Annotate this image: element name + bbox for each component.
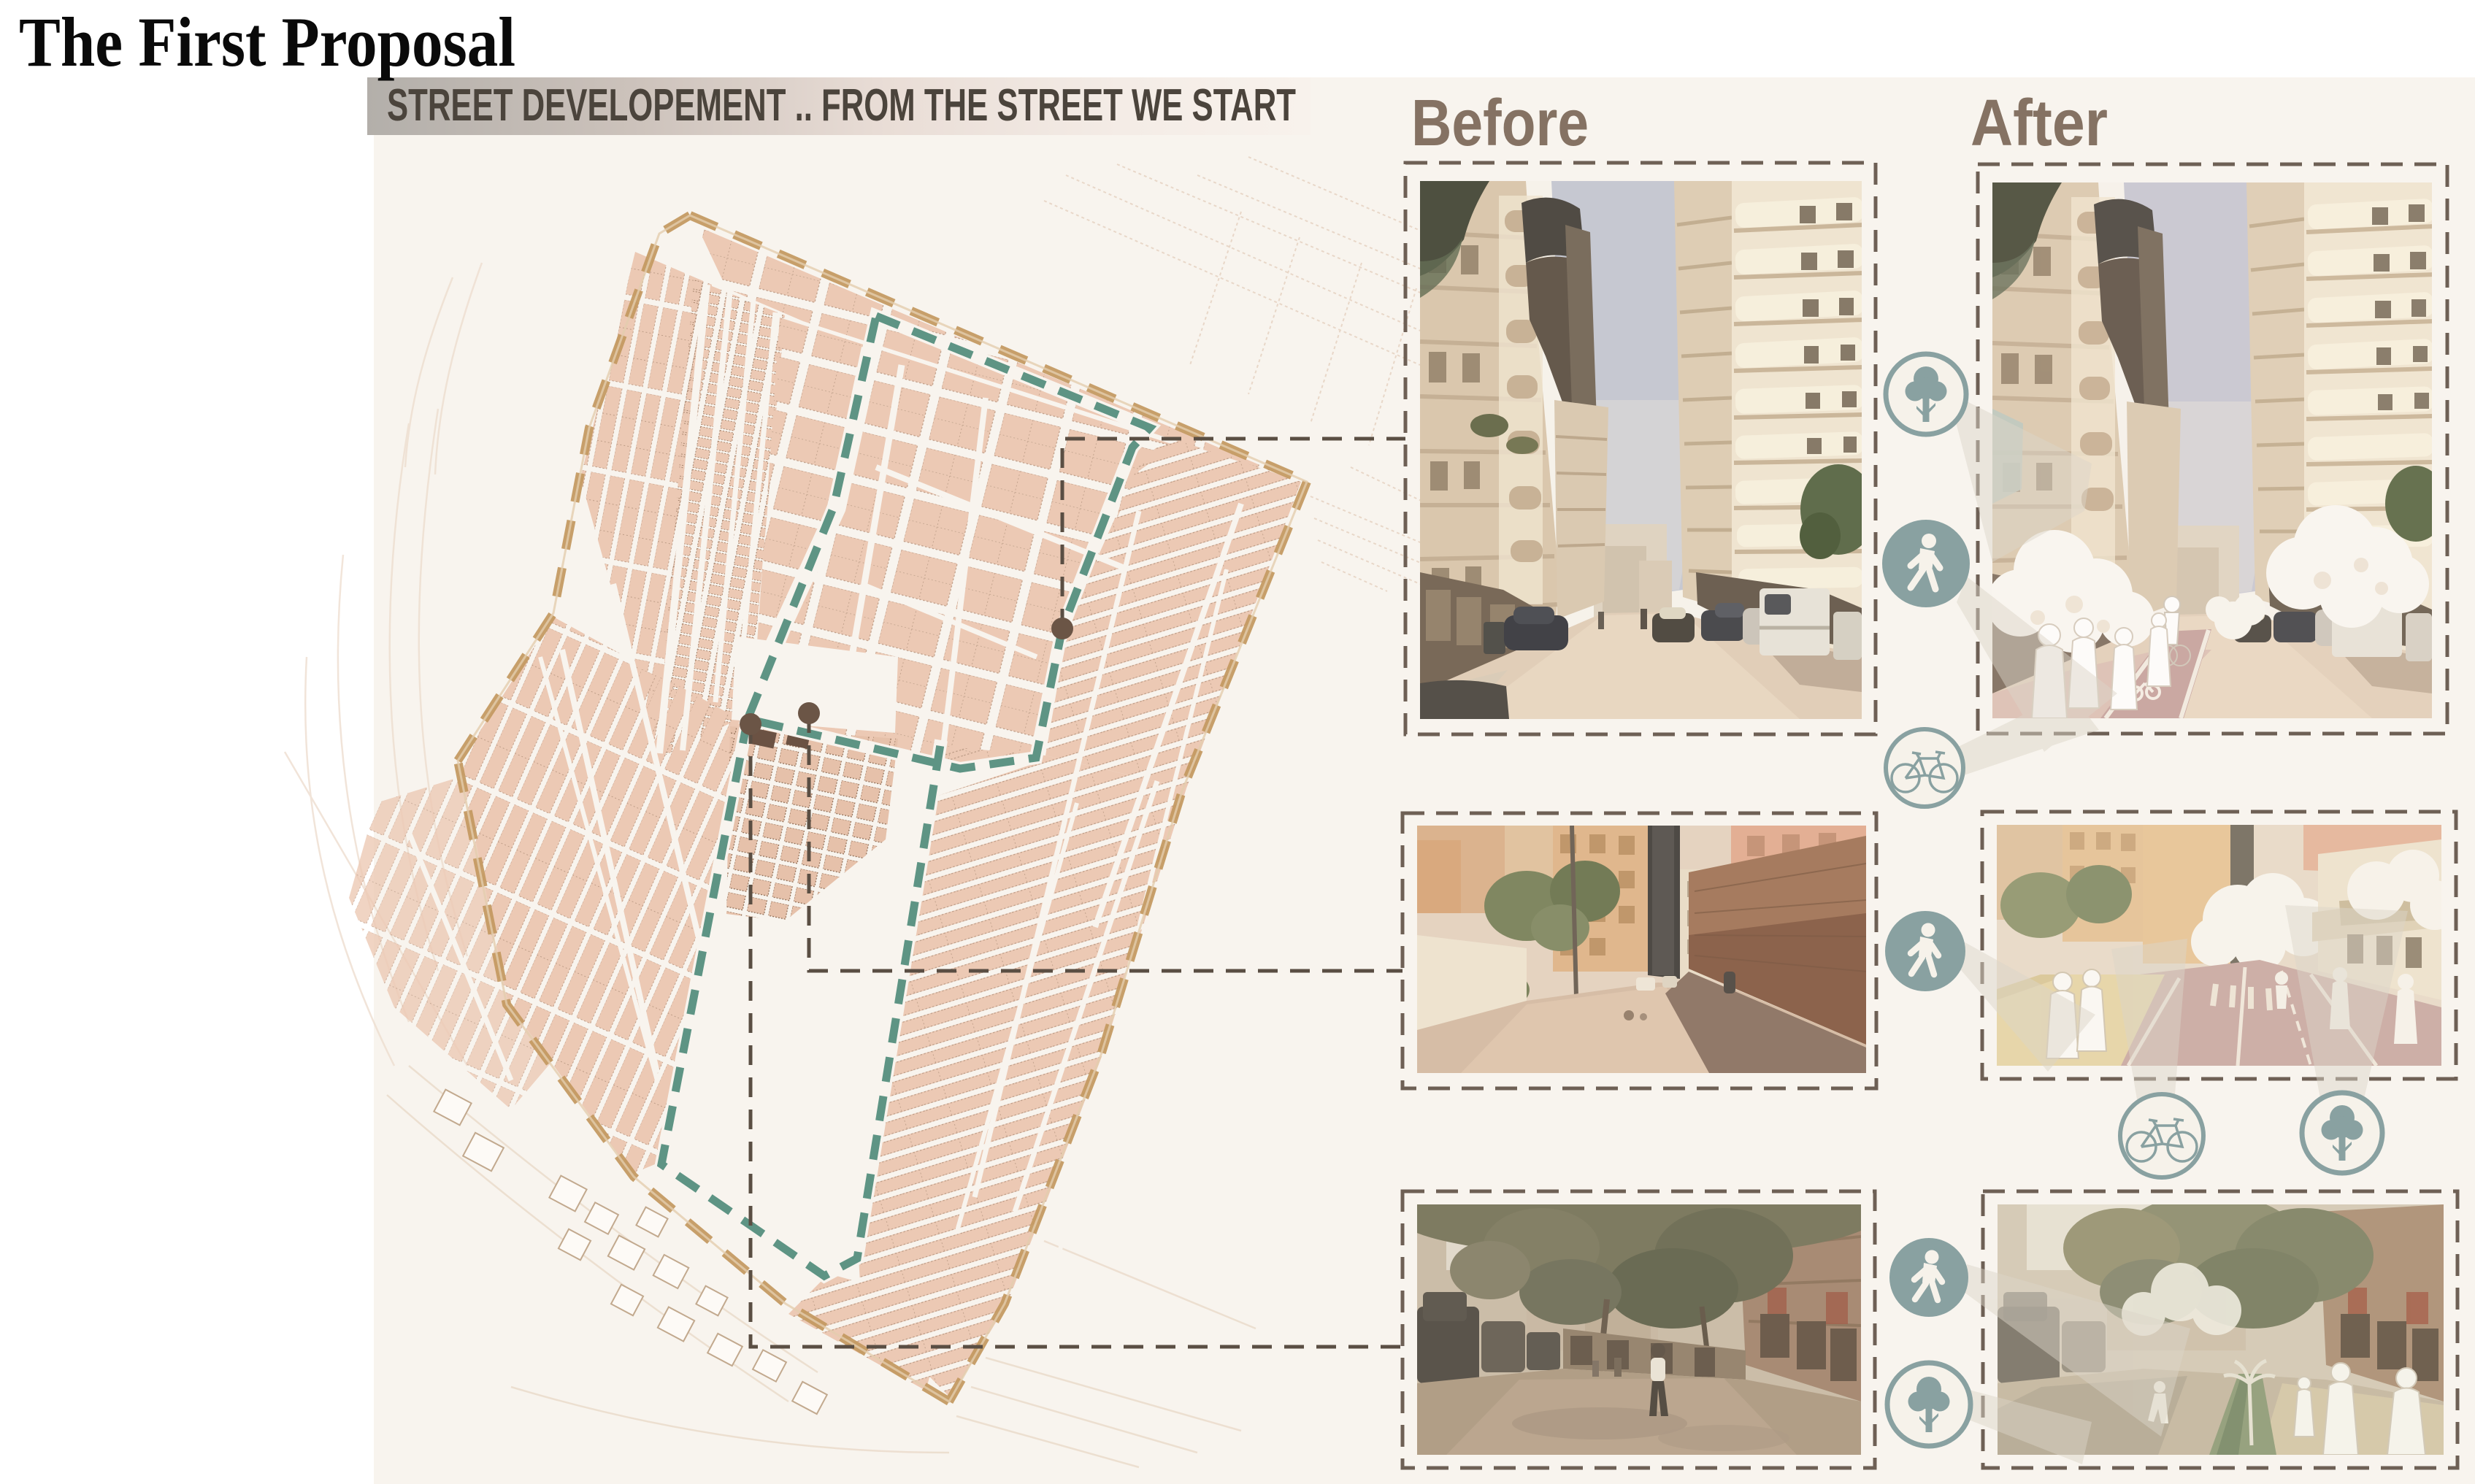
svg-text:After: After: [1971, 87, 2108, 160]
svg-text:STREET DEVELOPEMENT .. FROM TH: STREET DEVELOPEMENT .. FROM THE STREET W…: [387, 80, 1296, 131]
svg-text:The First Proposal: The First Proposal: [19, 3, 515, 81]
svg-text:Before: Before: [1411, 87, 1589, 160]
